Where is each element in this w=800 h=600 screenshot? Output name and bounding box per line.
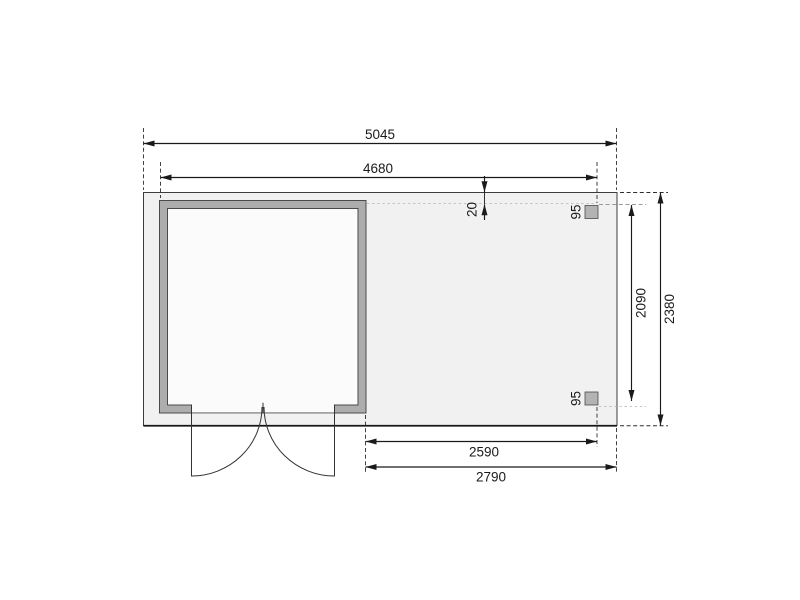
dim-overhang-label: 20 xyxy=(465,202,480,217)
dim-total-depth-label: 2380 xyxy=(662,294,677,324)
dim-roof-width-label: 4680 xyxy=(363,161,393,176)
dim-overall-width-label: 5045 xyxy=(365,127,395,142)
dim-post-top-label: 95 xyxy=(569,204,584,219)
dim-post-bottom-label: 95 xyxy=(569,391,584,406)
dim-canopy-depth-label: 2090 xyxy=(634,288,649,318)
shed-interior xyxy=(168,209,359,406)
dim-canopy-opening-label: 2590 xyxy=(469,445,499,460)
floor-plan-svg: 5045 4680 2590 2790 20 95 95 2090 2380 xyxy=(0,0,800,600)
canopy-post-bottom xyxy=(585,392,598,405)
dim-canopy-width-label: 2790 xyxy=(476,470,506,485)
drawing-canvas: 5045 4680 2590 2790 20 95 95 2090 2380 xyxy=(0,0,800,600)
canopy-post-top xyxy=(585,206,598,219)
